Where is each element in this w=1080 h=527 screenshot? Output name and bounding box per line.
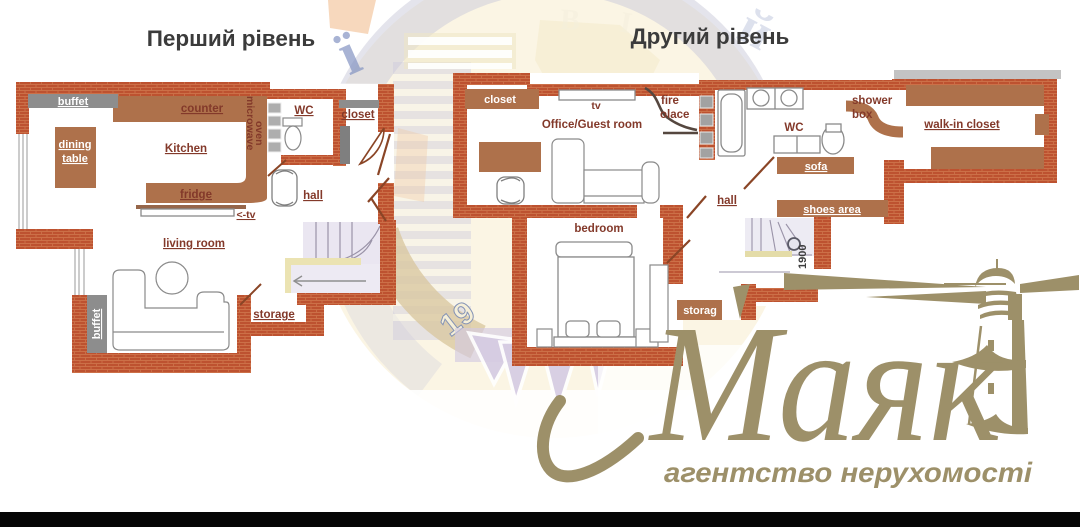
svg-text:sofa: sofa xyxy=(805,161,829,173)
svg-text:<-tv: <-tv xyxy=(237,209,256,221)
svg-text:fire: fire xyxy=(661,95,679,107)
svg-text:microwave: microwave xyxy=(244,96,256,150)
svg-text:buffet: buffet xyxy=(58,96,89,108)
svg-text:walk-in closet: walk-in closet xyxy=(923,119,1000,131)
svg-text:olace: olace xyxy=(660,109,689,121)
svg-text:Office/Guest room: Office/Guest room xyxy=(542,119,642,131)
svg-text:WC: WC xyxy=(294,105,313,117)
svg-text:closet: closet xyxy=(484,94,516,106)
svg-text:1900: 1900 xyxy=(797,245,809,269)
svg-text:hall: hall xyxy=(303,190,323,202)
svg-text:shoes area: shoes area xyxy=(803,204,861,216)
svg-text:tv: tv xyxy=(591,100,600,112)
svg-text:Перший рівень: Перший рівень xyxy=(147,26,316,51)
svg-text:Маяк: Маяк xyxy=(648,291,1003,477)
svg-text:агентство нерухомості: агентство нерухомості xyxy=(664,457,1033,488)
svg-text:Kitchen: Kitchen xyxy=(165,143,207,155)
svg-text:hall: hall xyxy=(717,195,737,207)
svg-text:storage: storage xyxy=(253,309,295,321)
svg-text:living room: living room xyxy=(163,238,225,250)
svg-text:shower: shower xyxy=(852,95,893,107)
svg-text:table: table xyxy=(62,153,88,165)
svg-text:bedroom: bedroom xyxy=(574,223,623,235)
svg-text:dining: dining xyxy=(59,139,92,151)
svg-text:WC: WC xyxy=(784,122,803,134)
svg-text:counter: counter xyxy=(181,103,224,115)
svg-text:buffet: buffet xyxy=(91,308,103,339)
svg-text:В: В xyxy=(559,3,581,37)
svg-text:closet: closet xyxy=(341,109,374,121)
svg-text:Другий рівень: Другий рівень xyxy=(631,24,790,49)
svg-text:box: box xyxy=(852,109,873,121)
svg-text:fridge: fridge xyxy=(180,189,212,201)
